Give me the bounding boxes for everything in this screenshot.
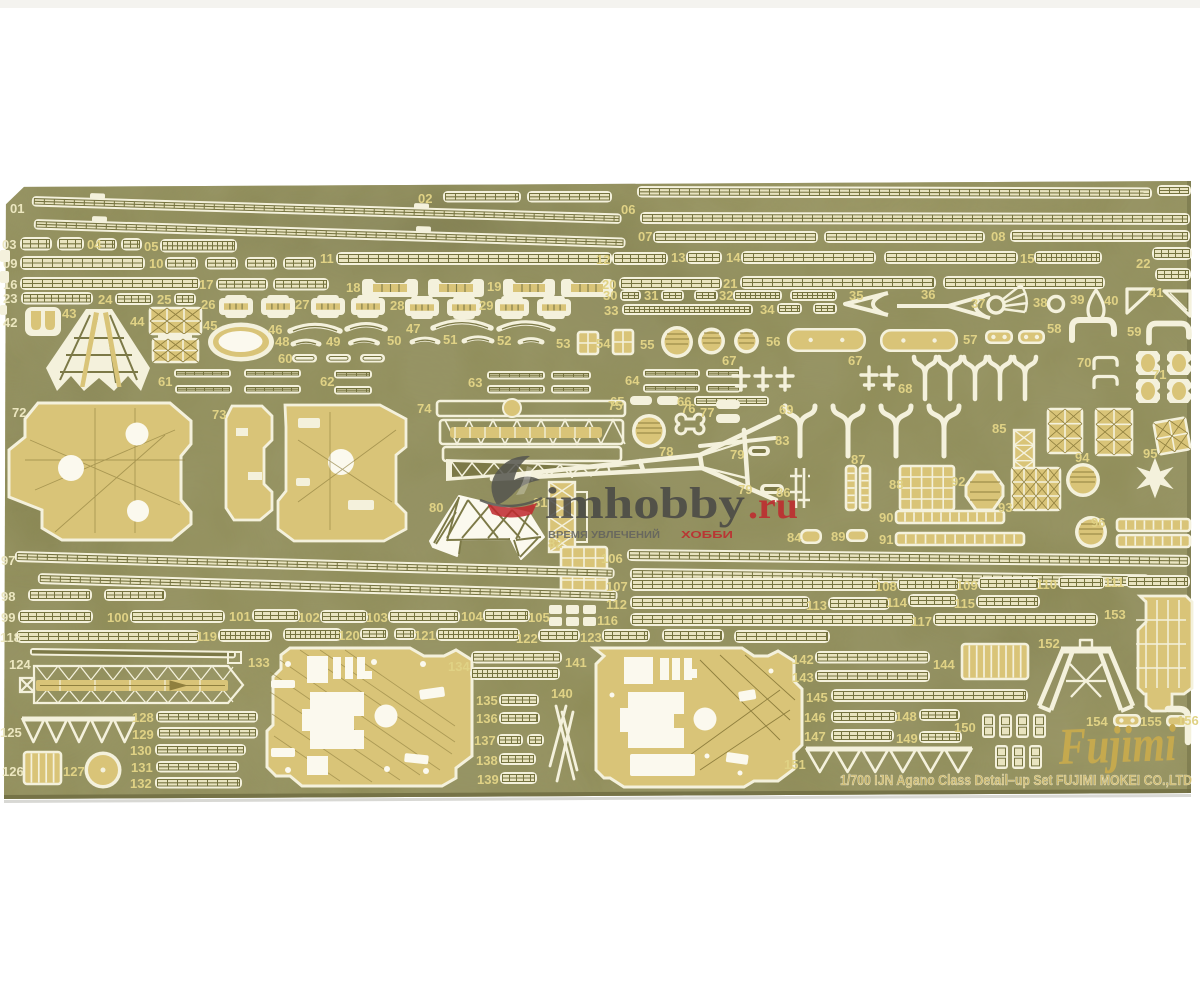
svg-text:126: 126 <box>2 764 24 779</box>
svg-text:106: 106 <box>601 551 623 566</box>
svg-text:94: 94 <box>1075 450 1090 465</box>
svg-text:39: 39 <box>1070 292 1084 307</box>
svg-text:97: 97 <box>1 553 15 568</box>
svg-text:129: 129 <box>132 727 154 742</box>
svg-text:98: 98 <box>1 589 15 604</box>
svg-text:92: 92 <box>951 474 965 489</box>
svg-text:45: 45 <box>203 318 217 333</box>
svg-text:143: 143 <box>792 670 814 685</box>
svg-text:34: 34 <box>760 302 775 317</box>
svg-text:56: 56 <box>766 334 780 349</box>
svg-text:103: 103 <box>366 610 388 625</box>
svg-text:133: 133 <box>248 655 270 670</box>
svg-text:30: 30 <box>603 288 617 303</box>
svg-text:91: 91 <box>879 532 893 547</box>
svg-text:55: 55 <box>640 337 654 352</box>
svg-text:18: 18 <box>346 280 360 295</box>
svg-text:118: 118 <box>0 630 21 645</box>
svg-text:63: 63 <box>468 375 482 390</box>
svg-text:153: 153 <box>1104 607 1126 622</box>
svg-text:89: 89 <box>831 529 845 544</box>
svg-text:114: 114 <box>886 595 908 610</box>
svg-text:131: 131 <box>131 760 153 775</box>
svg-text:141: 141 <box>565 655 587 670</box>
svg-text:62: 62 <box>320 374 334 389</box>
svg-text:ХОББИ: ХОББИ <box>681 529 733 541</box>
svg-text:105: 105 <box>528 610 550 625</box>
svg-text:12: 12 <box>596 252 610 267</box>
svg-text:110: 110 <box>1036 577 1057 592</box>
svg-text:111: 111 <box>1104 575 1124 590</box>
svg-text:115: 115 <box>954 596 975 611</box>
svg-text:.ru: .ru <box>748 485 798 527</box>
svg-text:06: 06 <box>621 202 635 217</box>
svg-text:93: 93 <box>998 500 1012 515</box>
svg-text:108: 108 <box>875 579 897 594</box>
svg-text:87: 87 <box>851 452 865 467</box>
svg-text:17: 17 <box>199 277 213 292</box>
svg-text:101: 101 <box>229 609 251 624</box>
svg-text:28: 28 <box>390 298 404 313</box>
svg-text:60: 60 <box>278 351 292 366</box>
svg-text:58: 58 <box>1047 321 1061 336</box>
svg-text:73: 73 <box>212 407 226 422</box>
svg-text:127: 127 <box>63 764 85 779</box>
svg-text:32: 32 <box>719 288 733 303</box>
svg-text:150: 150 <box>954 720 976 735</box>
svg-text:68: 68 <box>898 381 912 396</box>
svg-text:14: 14 <box>726 250 741 265</box>
svg-text:67: 67 <box>722 353 736 368</box>
svg-text:88: 88 <box>889 477 903 492</box>
svg-text:79: 79 <box>730 447 744 462</box>
svg-text:07: 07 <box>638 229 652 244</box>
svg-text:35: 35 <box>849 288 863 303</box>
svg-text:109: 109 <box>956 578 978 593</box>
svg-text:11: 11 <box>320 251 334 266</box>
svg-text:67: 67 <box>848 353 862 368</box>
svg-text:70: 70 <box>1077 355 1091 370</box>
svg-text:01: 01 <box>10 201 24 216</box>
svg-text:134: 134 <box>448 659 470 674</box>
svg-text:imhobby: imhobby <box>545 479 745 528</box>
svg-text:136: 136 <box>476 711 498 726</box>
svg-text:59: 59 <box>1127 324 1141 339</box>
svg-text:43: 43 <box>62 306 76 321</box>
svg-text:37: 37 <box>971 296 985 311</box>
svg-text:10: 10 <box>149 256 163 271</box>
svg-text:96: 96 <box>1091 515 1105 530</box>
svg-text:152: 152 <box>1038 636 1060 651</box>
svg-text:72: 72 <box>12 405 26 420</box>
svg-text:26: 26 <box>201 297 215 312</box>
svg-text:80: 80 <box>429 500 443 515</box>
svg-text:100: 100 <box>107 610 129 625</box>
svg-text:137: 137 <box>474 733 496 748</box>
svg-text:120: 120 <box>338 628 360 643</box>
svg-text:147: 147 <box>804 729 826 744</box>
svg-text:38: 38 <box>1033 295 1047 310</box>
svg-text:57: 57 <box>963 332 977 347</box>
svg-text:05: 05 <box>144 239 158 254</box>
svg-text:61: 61 <box>158 374 172 389</box>
svg-text:41: 41 <box>1149 285 1163 300</box>
svg-text:85: 85 <box>992 421 1006 436</box>
svg-text:138: 138 <box>476 753 498 768</box>
svg-text:49: 49 <box>326 334 340 349</box>
svg-text:47: 47 <box>406 321 420 336</box>
svg-text:54: 54 <box>596 336 611 351</box>
svg-text:99: 99 <box>1 610 15 625</box>
svg-text:117: 117 <box>911 614 932 629</box>
svg-text:1/700 IJN Agano Class Detail–u: 1/700 IJN Agano Class Detail–up Set FUJI… <box>840 773 1192 789</box>
svg-text:51: 51 <box>443 332 457 347</box>
svg-text:77: 77 <box>700 405 714 420</box>
svg-text:123: 123 <box>580 630 602 645</box>
svg-text:112: 112 <box>606 597 627 612</box>
svg-text:128: 128 <box>132 710 154 725</box>
svg-text:64: 64 <box>625 373 640 388</box>
svg-text:31: 31 <box>644 288 658 303</box>
svg-text:113: 113 <box>806 598 827 613</box>
svg-text:95: 95 <box>1143 446 1157 461</box>
svg-text:107: 107 <box>606 579 628 594</box>
svg-text:Fujimi: Fujimi <box>1057 715 1178 776</box>
svg-text:22: 22 <box>1136 256 1150 271</box>
svg-text:44: 44 <box>130 314 145 329</box>
svg-text:71: 71 <box>1152 367 1166 382</box>
svg-text:15: 15 <box>1020 251 1034 266</box>
svg-text:74: 74 <box>417 401 432 416</box>
svg-text:104: 104 <box>461 609 483 624</box>
svg-text:132: 132 <box>130 776 152 791</box>
svg-text:148: 148 <box>895 709 917 724</box>
svg-text:156: 156 <box>1177 713 1199 728</box>
svg-text:139: 139 <box>477 772 499 787</box>
svg-text:ВРЕМЯ УВЛЕЧЕНИЙ: ВРЕМЯ УВЛЕЧЕНИЙ <box>548 528 660 541</box>
svg-text:69: 69 <box>779 402 793 417</box>
svg-text:144: 144 <box>933 657 955 672</box>
svg-text:121: 121 <box>414 628 436 643</box>
svg-text:116: 116 <box>597 613 618 628</box>
svg-text:53: 53 <box>556 336 570 351</box>
svg-text:29: 29 <box>479 298 493 313</box>
svg-text:42: 42 <box>3 315 17 330</box>
svg-text:84: 84 <box>787 530 802 545</box>
svg-text:25: 25 <box>157 292 171 307</box>
svg-text:149: 149 <box>896 731 918 746</box>
svg-text:40: 40 <box>1104 293 1118 308</box>
svg-text:142: 142 <box>792 652 814 667</box>
svg-text:135: 135 <box>476 693 498 708</box>
svg-text:119: 119 <box>196 629 217 644</box>
svg-text:48: 48 <box>275 334 289 349</box>
svg-text:33: 33 <box>604 303 618 318</box>
svg-text:08: 08 <box>991 229 1005 244</box>
svg-text:151: 151 <box>784 757 806 772</box>
svg-text:13: 13 <box>671 250 685 265</box>
svg-text:146: 146 <box>804 710 826 725</box>
svg-text:03: 03 <box>2 237 16 252</box>
svg-text:76: 76 <box>681 401 695 416</box>
svg-text:50: 50 <box>387 333 401 348</box>
svg-text:04: 04 <box>87 237 102 252</box>
svg-text:78: 78 <box>659 444 673 459</box>
svg-text:83: 83 <box>775 433 789 448</box>
svg-text:122: 122 <box>516 631 538 646</box>
svg-text:124: 124 <box>9 657 31 672</box>
svg-text:140: 140 <box>551 686 573 701</box>
svg-text:52: 52 <box>497 333 511 348</box>
svg-text:36: 36 <box>921 287 935 302</box>
svg-text:102: 102 <box>298 610 320 625</box>
svg-text:130: 130 <box>130 743 152 758</box>
svg-text:125: 125 <box>0 725 22 740</box>
svg-text:90: 90 <box>879 510 893 525</box>
svg-text:23: 23 <box>3 291 17 306</box>
svg-text:145: 145 <box>806 690 828 705</box>
svg-text:24: 24 <box>98 292 113 307</box>
svg-text:75: 75 <box>608 398 622 413</box>
svg-text:19: 19 <box>487 279 501 294</box>
svg-text:27: 27 <box>295 297 309 312</box>
svg-text:02: 02 <box>418 191 432 206</box>
